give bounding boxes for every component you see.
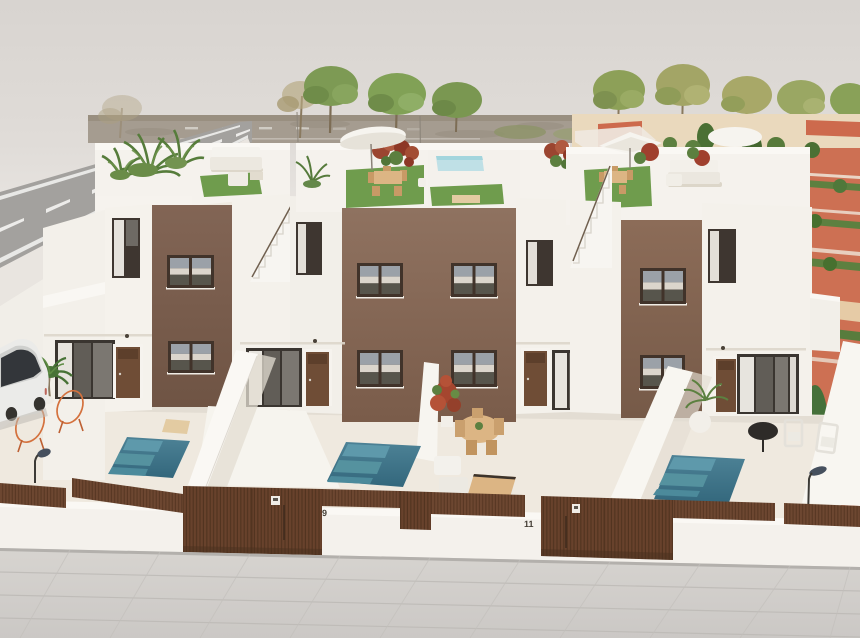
svg-text:11: 11 (524, 519, 534, 529)
svg-text:9: 9 (322, 508, 327, 518)
